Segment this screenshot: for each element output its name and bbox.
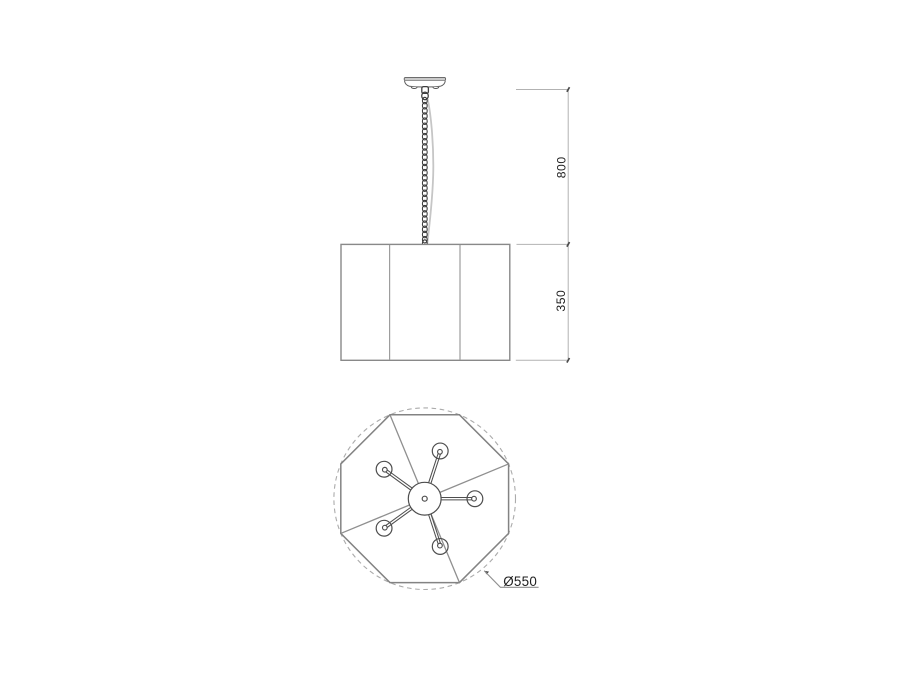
svg-text:800: 800 [554,156,568,178]
svg-text:Ø550: Ø550 [503,574,537,589]
svg-text:350: 350 [554,290,568,312]
